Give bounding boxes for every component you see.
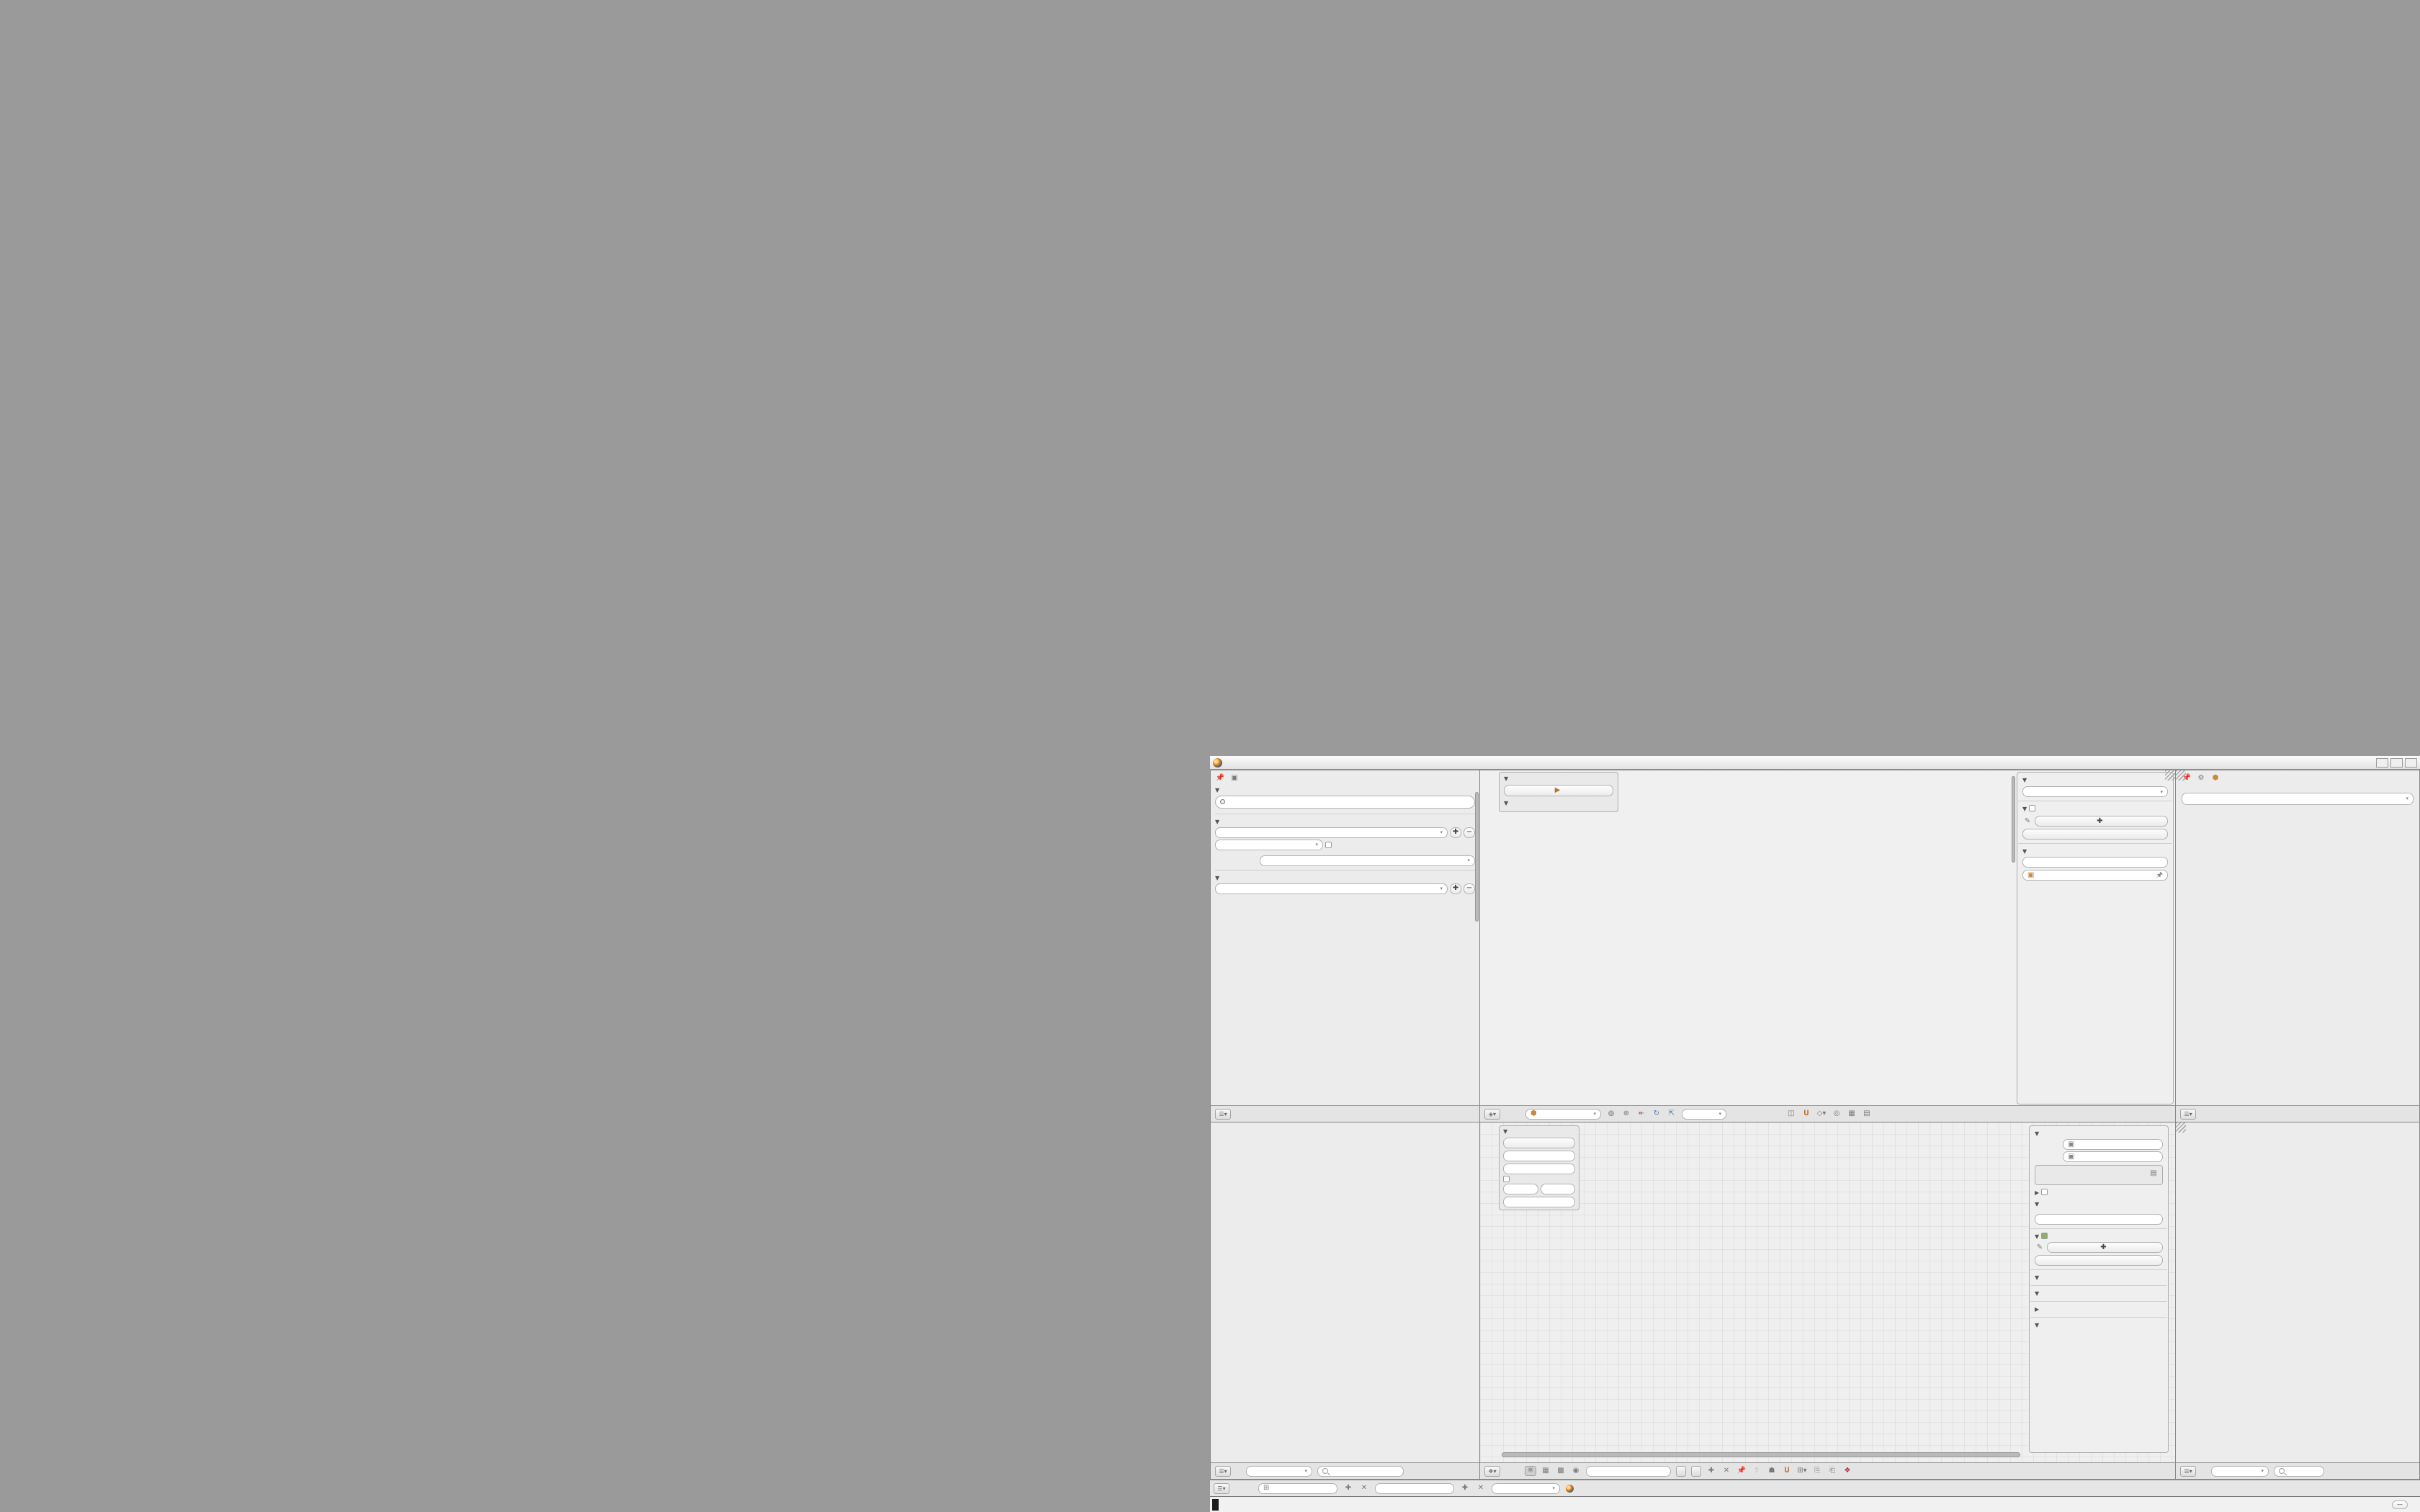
viewport-editor-button[interactable]: ◈▾ <box>1484 1109 1500 1120</box>
center-nodes-checkbox[interactable] <box>1503 1176 1510 1182</box>
node-size-field[interactable] <box>1503 1197 1575 1207</box>
editor-type-button[interactable]: ☰▾ <box>1215 1109 1231 1120</box>
search-input[interactable] <box>2274 1466 2324 1477</box>
npanel-scrollbar[interactable] <box>2012 776 2015 863</box>
outliner-rows-2 <box>2179 1125 2416 1460</box>
paste-icon[interactable]: ⎗ <box>1827 1467 1837 1475</box>
manipulator-rotate-icon[interactable]: ↻ <box>1652 1110 1662 1118</box>
node-npanel: ▣ ▣ ▤ <box>2029 1125 2169 1453</box>
node-tree-selector[interactable] <box>1586 1466 1671 1477</box>
users-count-button[interactable] <box>1676 1466 1686 1477</box>
integrator-select[interactable]: ▾ <box>1215 840 1323 850</box>
search-icon <box>1322 1468 1328 1474</box>
properties-header: ☰▾ <box>1211 1105 1479 1122</box>
node-label-field[interactable]: ▣ <box>2063 1151 2163 1162</box>
outliner-editor-button[interactable]: ☰▾ <box>1215 1466 1231 1477</box>
blender-version-icon <box>1566 1485 1574 1493</box>
viewport-header: ◈▾ ⬢▾ ◍ ⊕ ↞ ↻ ⇱ ▾ ◫ 𝐔 ◇▾ <box>1480 1105 2175 1122</box>
pencil-icon[interactable]: ✎ <box>2035 1243 2045 1252</box>
scene-select[interactable] <box>1375 1483 1454 1494</box>
new-tree-icon[interactable]: ✚ <box>1706 1467 1716 1475</box>
margin-y-field[interactable] <box>1503 1164 1575 1174</box>
texture-node-icon[interactable]: ▩ <box>1556 1467 1566 1475</box>
node-arrange-panel <box>1499 1125 1579 1210</box>
outliner-editor-button[interactable]: ☰▾ <box>2180 1466 2196 1477</box>
toolshelf-sverchok: ▶ <box>1499 772 1618 812</box>
dim-preset-remove-button[interactable]: − <box>1464 883 1475 894</box>
system-tray: — <box>2392 1500 2418 1509</box>
snap-magnet-icon[interactable]: 𝐔 <box>1801 1110 1811 1118</box>
object-cube-icon: ⬢ <box>2210 774 2220 783</box>
panel-dimensions[interactable] <box>1215 873 1475 882</box>
tray-collapse-button[interactable]: — <box>2392 1500 2408 1509</box>
node-hscrollbar[interactable] <box>1502 1452 2020 1457</box>
mode-select[interactable]: ⬢▾ <box>1525 1109 1601 1120</box>
dim-preset-add-button[interactable]: ✚ <box>1450 883 1461 894</box>
fake-user-button[interactable] <box>1691 1466 1701 1477</box>
radio-icon <box>1220 799 1225 804</box>
scene-add-icon[interactable]: ✚ <box>1460 1484 1470 1493</box>
gp-layers-panel[interactable] <box>2022 804 2168 813</box>
outliner-1: ☰▾ ▾ <box>1210 1122 1480 1480</box>
lens-field[interactable] <box>2022 857 2168 868</box>
node-editor-header: ❖▾ ⚛ ▦ ▩ ◉ ✚ ✕ 📌 ⇧ ☗ � <box>1480 1462 2175 1479</box>
margin-x-field[interactable] <box>1503 1151 1575 1161</box>
arrange-nodes-button[interactable] <box>1503 1138 1575 1148</box>
display-filter-select[interactable]: ▾ <box>1246 1466 1312 1477</box>
scene-delete-icon[interactable]: ✕ <box>1476 1484 1486 1493</box>
engine-select[interactable]: ▾ <box>1492 1483 1560 1494</box>
close-button[interactable] <box>2405 758 2417 768</box>
node-gp-layers[interactable] <box>2035 1232 2163 1241</box>
arrange-field-2[interactable] <box>1541 1184 1576 1194</box>
node-editor-button[interactable]: ❖▾ <box>1484 1466 1500 1477</box>
node-editor[interactable]: ▣ ▣ ▤ <box>1479 1122 2176 1480</box>
shader-icon[interactable]: ⚛ <box>1525 1467 1536 1475</box>
pin-icon[interactable]: 📌 <box>1215 774 1225 783</box>
clay-render-field[interactable] <box>1215 796 1475 809</box>
rotation-mode-select[interactable]: ▾ <box>2022 786 2168 797</box>
node-name-field[interactable]: ▣ <box>2063 1139 2163 1150</box>
gp-new-button[interactable]: ✚ <box>2035 816 2168 827</box>
auto-render-icon[interactable]: ☗ <box>1767 1467 1777 1475</box>
minimize-button[interactable] <box>2376 758 2388 768</box>
properties-editor-render: 📌 ▣ ▾ ✚ − <box>1210 770 1480 1122</box>
windows-taskbar: — <box>1210 1496 2420 1512</box>
lock-object-field[interactable]: ▣🖈 <box>2022 870 2168 881</box>
outliner-rows <box>1214 1125 1476 1460</box>
layout-delete-icon[interactable]: ✕ <box>1359 1484 1369 1493</box>
editor-type-button[interactable]: ☰▾ <box>2180 1109 2196 1120</box>
pivot-icon[interactable]: ⊕ <box>1621 1110 1631 1118</box>
manipulator-scale-icon[interactable]: ⇱ <box>1667 1110 1677 1118</box>
properties-editor-modifier: 📌 ⚙ ⬢ ▾ ☰▾ <box>2175 770 2420 1122</box>
properties-scrollbar[interactable] <box>1475 792 1479 922</box>
sverchok-icon[interactable]: ◉ <box>1571 1467 1581 1475</box>
copy-icon[interactable]: ⎘ <box>1812 1467 1822 1475</box>
quadrant-original: 📌 ▣ ▾ ✚ − <box>1210 756 2420 1512</box>
start-button[interactable] <box>1212 1499 1219 1511</box>
quadrant-mirror-y <box>1210 0 2420 756</box>
start-live-update-button[interactable]: ▶ <box>1504 785 1613 796</box>
info-bar: ☰▾ ⊞ ✚✕ ✚✕ ▾ <box>1210 1480 2420 1496</box>
render-context-icon: ▣ <box>1229 774 1240 783</box>
orientation-select[interactable]: ▾ <box>1682 1109 1726 1120</box>
kaleidoscope-stage: 📌 ▣ ▾ ✚ − <box>0 0 2420 1512</box>
viewport-shading-icon[interactable]: ◍ <box>1606 1110 1616 1118</box>
outliner-search-input[interactable] <box>1317 1466 1404 1477</box>
proportional-icon[interactable]: ◎ <box>1832 1110 1842 1118</box>
pin-icon[interactable]: 📌 <box>1736 1467 1747 1475</box>
blender-logo-icon <box>1213 758 1222 768</box>
square-samples-checkbox[interactable] <box>1325 842 1332 848</box>
color-panel[interactable] <box>2035 1188 2163 1197</box>
quadrant-mirror-x <box>0 756 1210 1512</box>
add-modifier-select[interactable]: ▾ <box>2182 793 2414 805</box>
gp-new-layer-button[interactable] <box>2022 829 2168 840</box>
snap-element-icon[interactable]: ◇▾ <box>1816 1110 1827 1118</box>
arrange-field-1[interactable] <box>1503 1184 1538 1194</box>
parent-tree-icon: ⇧ <box>1752 1467 1762 1475</box>
examples-icon[interactable]: ❖ <box>1842 1467 1852 1475</box>
pattern-select[interactable]: ▾ <box>1260 855 1475 866</box>
blender-window: 📌 ▣ ▾ ✚ − <box>1210 756 2420 1512</box>
panel-render[interactable] <box>1215 786 1475 794</box>
search-icon <box>2279 1468 2285 1474</box>
node-gp-new-button[interactable]: ✚ <box>2047 1242 2163 1253</box>
sampling-presets[interactable]: ▾ <box>1215 827 1448 838</box>
layout-add-icon[interactable]: ✚ <box>1343 1484 1353 1493</box>
outliner-2: ☰▾ ▾ <box>2175 1122 2420 1480</box>
lock-icon[interactable]: ◫ <box>1786 1110 1796 1118</box>
render-anim-icon[interactable]: ▤ <box>1862 1110 1872 1118</box>
render-presets[interactable]: ▾ <box>1215 883 1448 894</box>
manipulator-translate-icon[interactable]: ↞ <box>1636 1110 1646 1118</box>
modifier-properties-header: ☰▾ <box>2176 1105 2419 1122</box>
clipboard-icon[interactable]: ▤ <box>2148 1169 2159 1178</box>
preset-remove-button[interactable]: − <box>1464 827 1475 838</box>
iterations-field[interactable] <box>2035 1214 2163 1225</box>
pencil-icon[interactable]: ✎ <box>2022 817 2033 826</box>
render-opengl-icon[interactable]: ▦ <box>1847 1110 1857 1118</box>
panel-sampling[interactable] <box>1215 817 1475 826</box>
preset-add-button[interactable]: ✚ <box>1450 827 1461 838</box>
node-gp-new-layer-button[interactable] <box>2035 1255 2163 1266</box>
outliner-2-header: ☰▾ ▾ <box>2176 1462 2419 1479</box>
quadrant-mirror-xy <box>0 0 1210 756</box>
screen-layout-select[interactable]: ⊞ <box>1258 1483 1337 1494</box>
viewport-3d[interactable]: ▶ ▾ <box>1479 770 2176 1122</box>
snap-mode-icon[interactable]: ⊞▾ <box>1797 1467 1807 1475</box>
outliner-header: ☰▾ ▾ <box>1211 1462 1479 1479</box>
display-filter-select[interactable]: ▾ <box>2211 1466 2269 1477</box>
title-bar[interactable] <box>1210 756 2420 770</box>
npanel-transform: ▾ ✎ ✚ ▣🖈 <box>2017 772 2174 1104</box>
maximize-button[interactable] <box>2390 758 2403 768</box>
wrench-icon: ⚙ <box>2196 774 2206 783</box>
snap-icon[interactable]: 𝐔 <box>1782 1467 1792 1475</box>
info-editor-button[interactable]: ☰▾ <box>1214 1483 1229 1494</box>
compositing-icon[interactable]: ▦ <box>1541 1467 1551 1475</box>
unlink-icon[interactable]: ✕ <box>1721 1467 1731 1475</box>
